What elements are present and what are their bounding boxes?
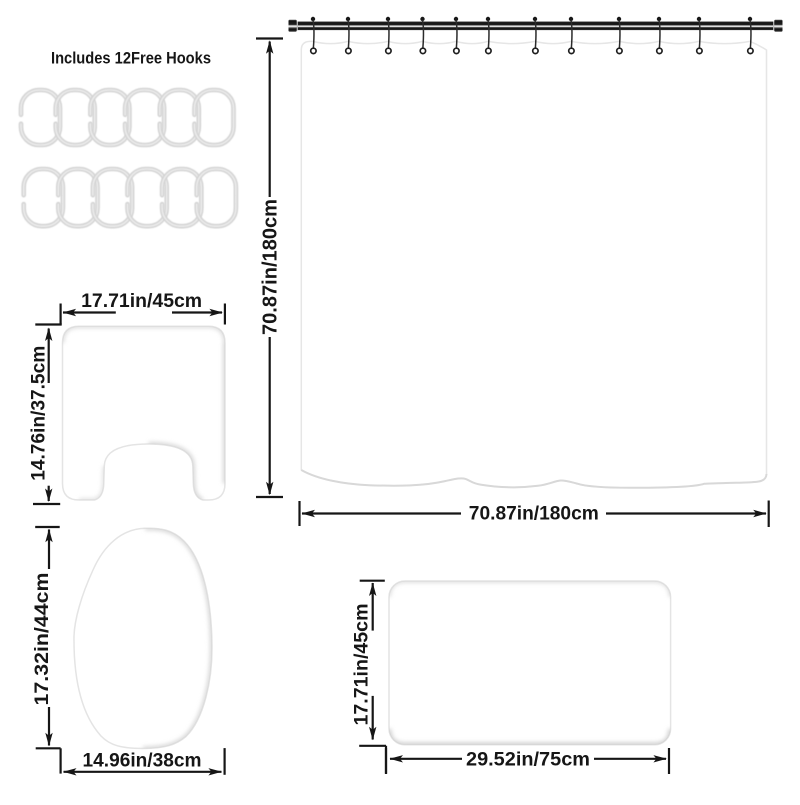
svg-text:17.32in/44cm: 17.32in/44cm [32,573,53,706]
svg-text:70.87in/180cm: 70.87in/180cm [469,504,599,525]
svg-text:17.71in/45cm: 17.71in/45cm [352,604,373,726]
svg-text:29.52in/75cm: 29.52in/75cm [466,750,590,771]
svg-text:70.87in/180cm: 70.87in/180cm [260,199,282,335]
svg-text:14.76in/37.5cm: 14.76in/37.5cm [29,346,50,481]
svg-text:Includes 12Free Hooks: Includes 12Free Hooks [51,49,211,68]
svg-text:17.71in/45cm: 17.71in/45cm [81,291,202,312]
svg-text:14.96in/38cm: 14.96in/38cm [83,751,202,772]
